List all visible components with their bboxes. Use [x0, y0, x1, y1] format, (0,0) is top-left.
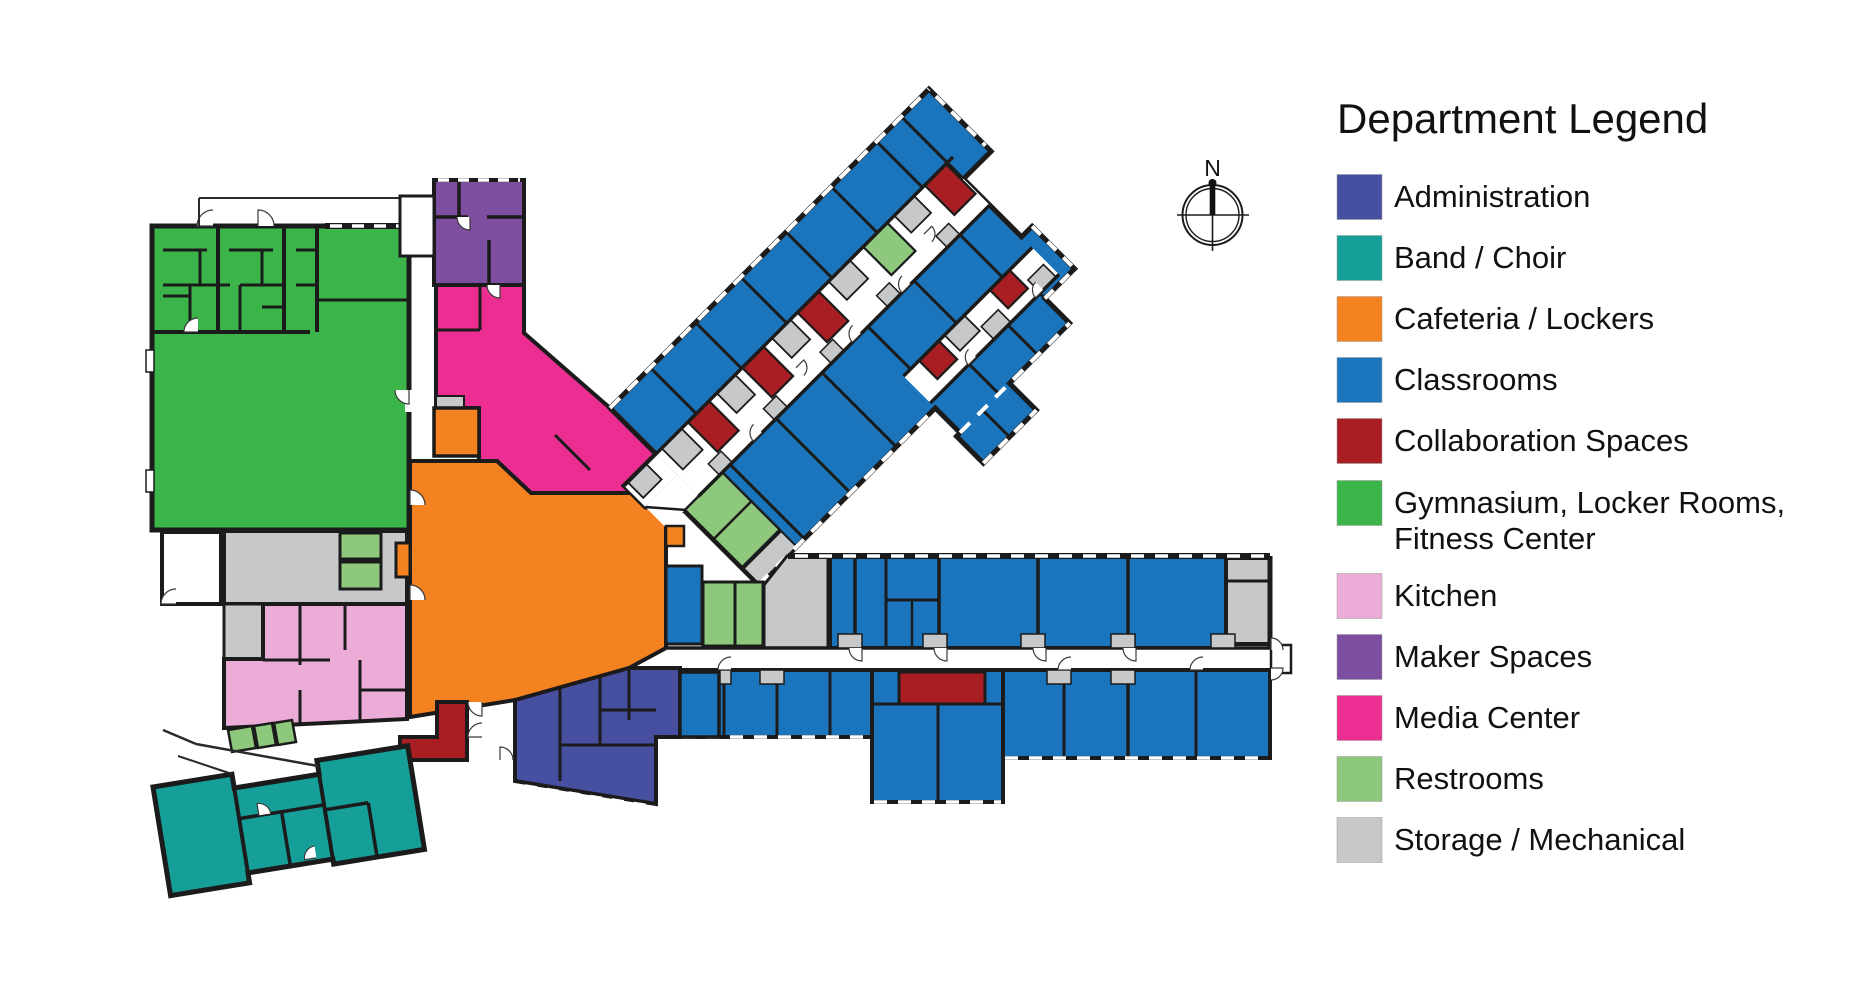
svg-text:Media Center: Media Center	[1394, 700, 1580, 735]
svg-text:Cafeteria / Lockers: Cafeteria / Lockers	[1394, 301, 1654, 336]
svg-text:Band / Choir: Band / Choir	[1394, 240, 1566, 275]
svg-text:Department Legend: Department Legend	[1337, 95, 1708, 142]
svg-text:Restrooms: Restrooms	[1394, 761, 1544, 796]
svg-text:Collaboration Spaces: Collaboration Spaces	[1394, 423, 1689, 458]
svg-text:Kitchen: Kitchen	[1394, 578, 1497, 613]
svg-text:Fitness Center: Fitness Center	[1394, 521, 1596, 556]
svg-text:Administration: Administration	[1394, 179, 1590, 214]
svg-text:Classrooms: Classrooms	[1394, 362, 1558, 397]
svg-text:N: N	[1204, 155, 1221, 181]
svg-text:Gymnasium, Locker Rooms,: Gymnasium, Locker Rooms,	[1394, 485, 1785, 520]
svg-text:Storage / Mechanical: Storage / Mechanical	[1394, 822, 1685, 857]
svg-text:Maker Spaces: Maker Spaces	[1394, 639, 1592, 674]
